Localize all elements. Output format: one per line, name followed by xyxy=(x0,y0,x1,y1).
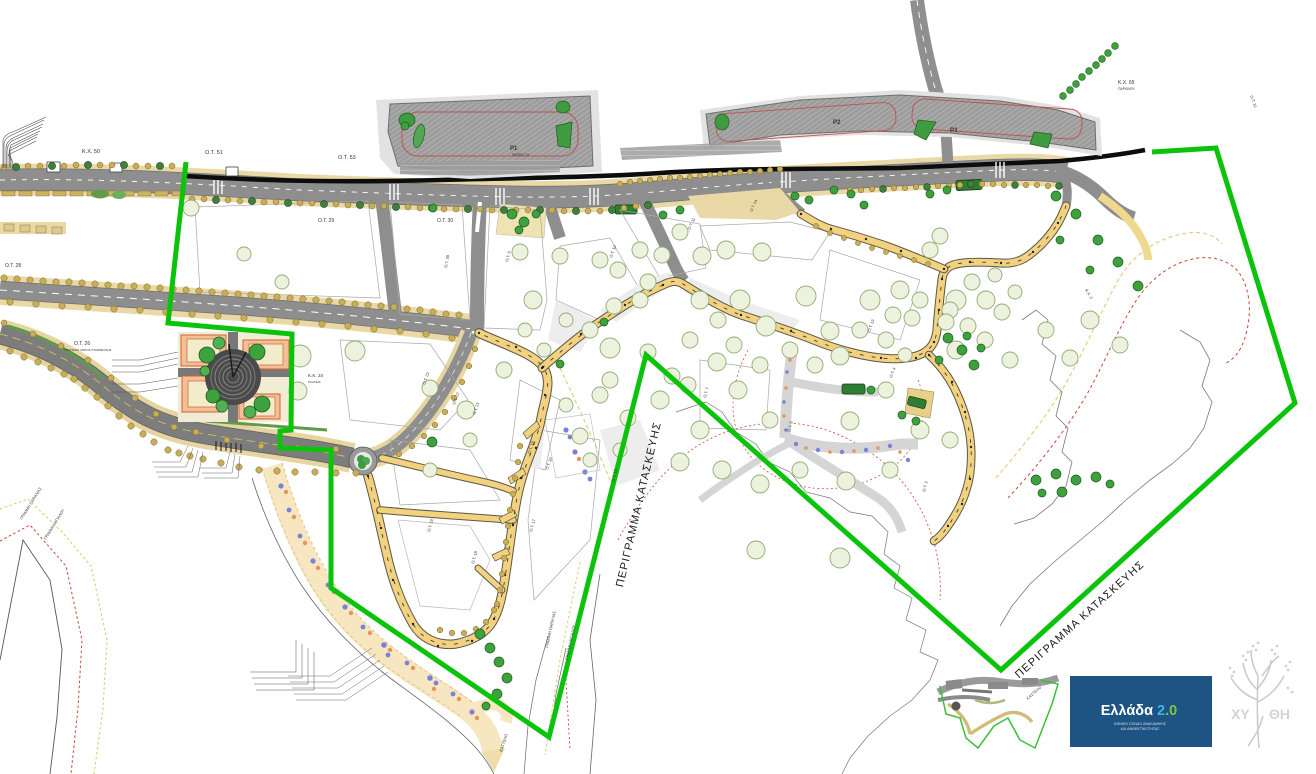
svg-text:ΧΥ: ΧΥ xyxy=(1231,706,1250,722)
svg-text:O.T. 26: O.T. 26 xyxy=(74,341,90,347)
svg-text:ΥΠΟΓΕΙΟΣ ΧΩΡΟΣ ΣΤΑΘΜΕΥΣΗΣ: ΥΠΟΓΕΙΟΣ ΧΩΡΟΣ ΣΤΑΘΜΕΥΣΗΣ xyxy=(64,348,112,352)
svg-text:K.X. 65: K.X. 65 xyxy=(1118,80,1135,86)
svg-text:O.T. 29: O.T. 29 xyxy=(318,218,334,224)
svg-text:ΘΗ: ΘΗ xyxy=(1269,706,1290,722)
svg-text:P1: P1 xyxy=(510,146,518,152)
svg-text:ΠΑΡΚΙΝΓΚ: ΠΑΡΚΙΝΓΚ xyxy=(1118,87,1135,91)
svg-text:P3: P3 xyxy=(950,128,958,134)
svg-text:ΘΕΣΕΙΣ 74: ΘΕΣΕΙΣ 74 xyxy=(512,153,529,157)
svg-text:O.T. 30: O.T. 30 xyxy=(437,218,453,224)
svg-text:K.K. 24: K.K. 24 xyxy=(308,373,324,378)
svg-text:ΕΘΝΙΚΟ ΣΧΕΔΙΟ ΑΝΑΚΑΜΨΗΣ: ΕΘΝΙΚΟ ΣΧΕΔΙΟ ΑΝΑΚΑΜΨΗΣ xyxy=(1114,722,1167,726)
svg-text:ΠΛΑΤΕΙΑ: ΠΛΑΤΕΙΑ xyxy=(308,380,321,384)
svg-text:K.X. 50: K.X. 50 xyxy=(82,149,100,155)
svg-text:O.T. 53: O.T. 53 xyxy=(338,155,356,161)
svg-text:Ελλάδα 2.0: Ελλάδα 2.0 xyxy=(1101,703,1177,719)
svg-text:O.T. 51: O.T. 51 xyxy=(205,150,223,156)
svg-text:O.T. 28: O.T. 28 xyxy=(5,263,21,269)
svg-text:P2: P2 xyxy=(833,120,841,126)
svg-text:ΚΑΙ ΑΝΘΕΚΤΙΚΟΤΗΤΑΣ: ΚΑΙ ΑΝΘΕΚΤΙΚΟΤΗΤΑΣ xyxy=(1121,727,1161,731)
